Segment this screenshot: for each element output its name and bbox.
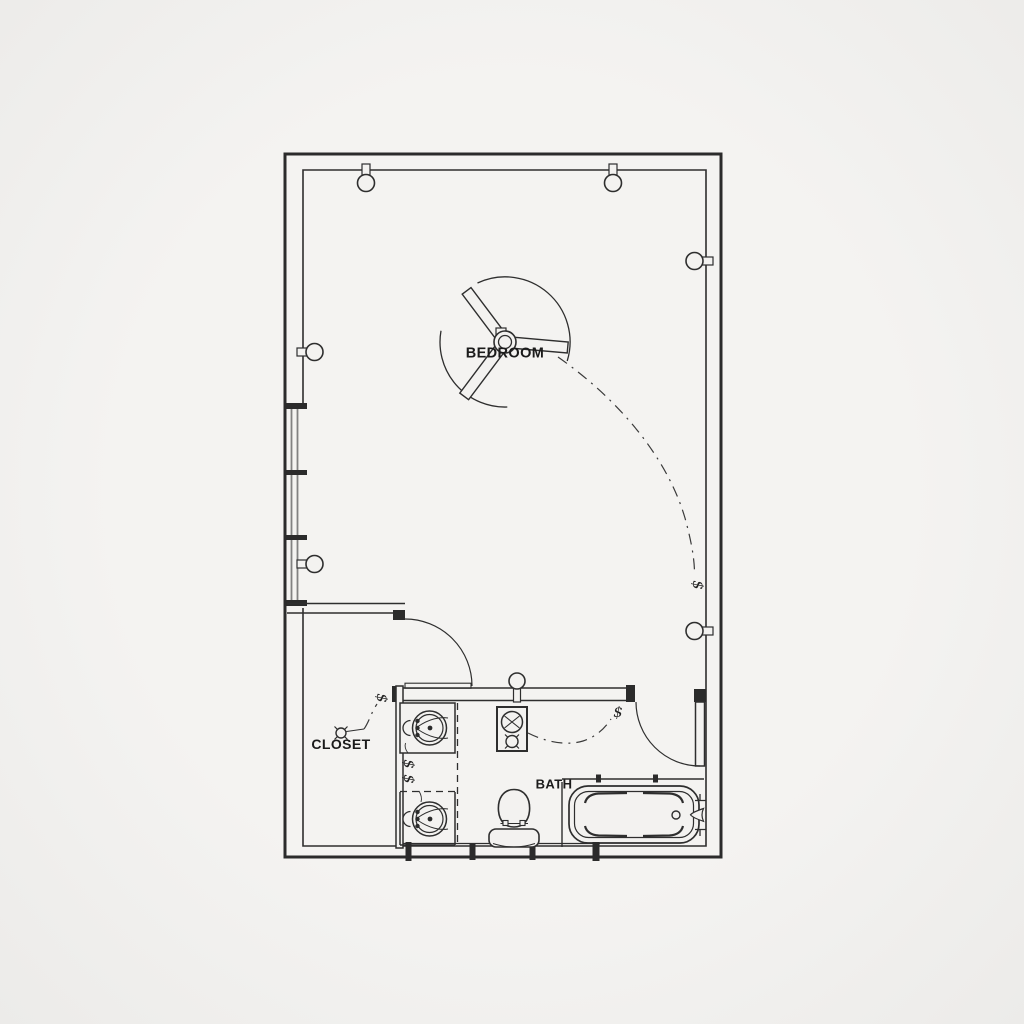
window-mullion bbox=[286, 470, 307, 475]
fixture-box bbox=[497, 707, 527, 751]
bath-door-jamb bbox=[626, 685, 635, 702]
faucet-handle bbox=[415, 726, 419, 730]
sink-drain bbox=[428, 817, 433, 822]
toilet-seat-hinge bbox=[503, 821, 508, 826]
floor-plan-drawing: $ bbox=[0, 0, 1024, 1024]
sink-faucet bbox=[403, 812, 410, 827]
wiring-closet-light-to-switch bbox=[364, 704, 377, 729]
vanity-switch-lower-symbol: $ bbox=[400, 774, 418, 784]
switch-leader-line bbox=[419, 791, 421, 802]
left-wall-window bbox=[286, 403, 307, 606]
bath-door-swing bbox=[636, 702, 705, 766]
bath-door-hinge-jamb bbox=[694, 689, 706, 702]
exhaust-fan-light-icon bbox=[497, 707, 527, 751]
faucet-handle bbox=[415, 824, 419, 828]
sconce-light-icon bbox=[306, 556, 323, 573]
wiring-fan-to-switch bbox=[528, 719, 611, 743]
bath-door-arc bbox=[636, 702, 700, 766]
vanity-switch-upper-symbol: $ bbox=[400, 759, 418, 769]
wiring-ceiling-fan-to-switch bbox=[558, 357, 695, 571]
floor-plan-canvas: $ bbox=[0, 0, 1024, 1024]
bath-switch-symbol: $ bbox=[613, 703, 623, 721]
light-leader-line bbox=[347, 729, 365, 732]
alcove-tick bbox=[596, 775, 601, 783]
bedroom-switch-symbol: $ bbox=[689, 580, 707, 590]
toilet-icon bbox=[489, 790, 539, 848]
faucet-handle bbox=[415, 810, 419, 814]
wall-sconce-left-lower bbox=[297, 556, 323, 573]
wall-sconce-right-lower bbox=[686, 623, 713, 640]
wall-sconce-top-right bbox=[605, 164, 622, 192]
wall-sconce-right-upper bbox=[686, 253, 713, 270]
sconce-light-icon bbox=[686, 253, 703, 270]
sconce-light-icon bbox=[605, 175, 622, 192]
wall-tick bbox=[406, 842, 412, 861]
sink-drain bbox=[428, 726, 433, 731]
bath-door-leaf bbox=[696, 702, 705, 766]
faucet-handle bbox=[415, 733, 419, 737]
faucet-handle bbox=[415, 817, 419, 821]
wall-tick bbox=[470, 844, 476, 860]
alcove-tick bbox=[653, 775, 658, 783]
wall-tick bbox=[593, 842, 600, 861]
closet-door-swing bbox=[405, 619, 472, 688]
sconce-light-icon bbox=[306, 344, 323, 361]
bedroom-label: BEDROOM bbox=[466, 346, 545, 362]
sconce-light-icon bbox=[358, 175, 375, 192]
closet-door-arc bbox=[405, 619, 472, 686]
ceiling-fan-icon bbox=[440, 277, 570, 407]
bathtub-icon bbox=[569, 786, 706, 843]
vanity-sink-lower-icon bbox=[403, 802, 448, 836]
wall-sconce-left-upper bbox=[297, 344, 323, 361]
faucet-handle bbox=[415, 719, 419, 723]
light-circle bbox=[509, 673, 525, 689]
window-mullion bbox=[286, 535, 307, 540]
closet-door-jamb bbox=[393, 610, 405, 620]
window-sill-top bbox=[286, 403, 307, 409]
closet-label: CLOSET bbox=[311, 736, 370, 752]
closet-switch-symbol: $ bbox=[373, 693, 391, 703]
toilet-seat-hinge bbox=[520, 821, 525, 826]
bath-label: BATH bbox=[536, 777, 573, 792]
wall-sconce-top-left bbox=[358, 164, 375, 192]
bath-wall-light-icon bbox=[509, 673, 525, 702]
sconce-light-icon bbox=[686, 623, 703, 640]
